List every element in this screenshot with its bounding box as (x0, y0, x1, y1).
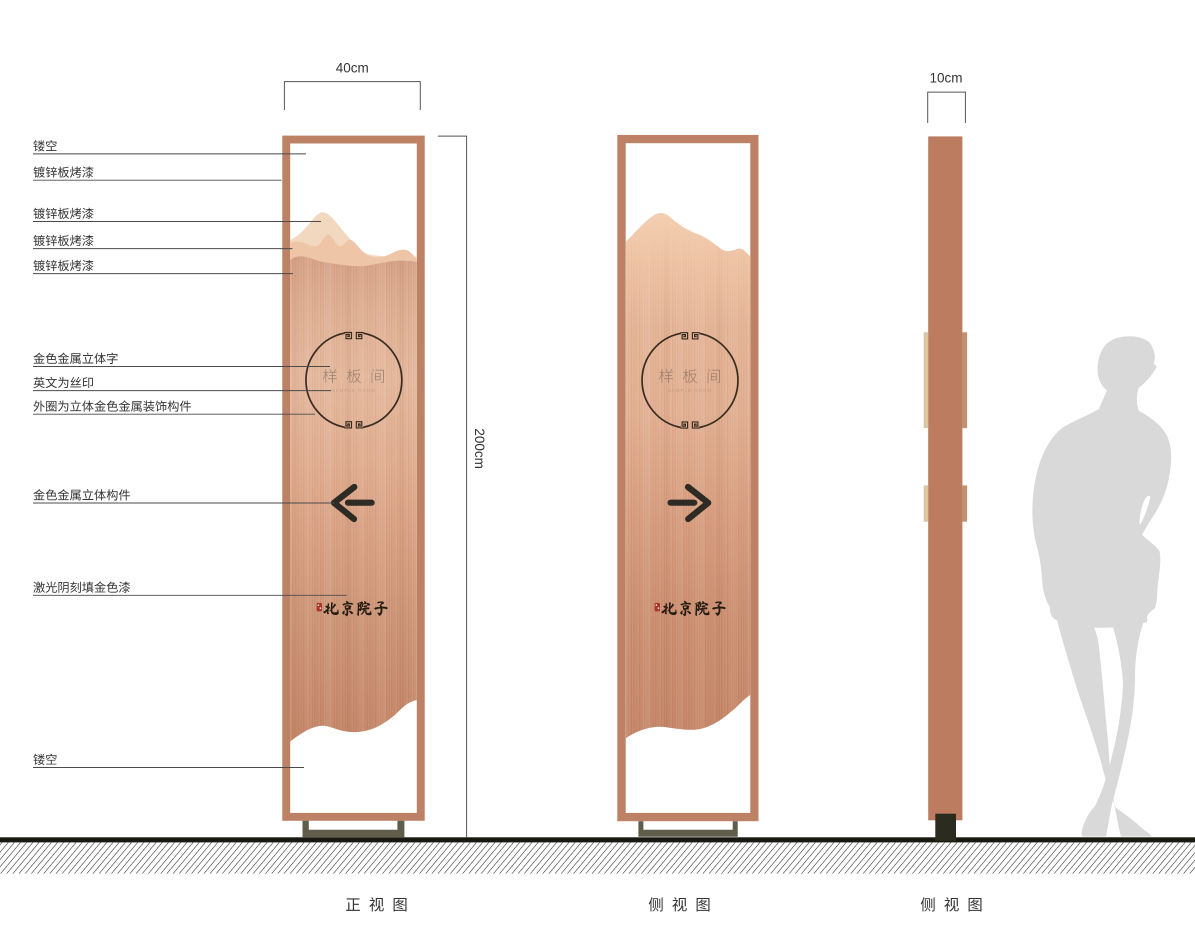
svg-text:40cm: 40cm (336, 61, 369, 76)
svg-text:SAMPLE ROOM: SAMPLE ROOM (332, 388, 376, 393)
svg-text:SAMPLE ROOM: SAMPLE ROOM (668, 388, 712, 393)
svg-text:200cm: 200cm (472, 428, 487, 469)
svg-text:10cm: 10cm (929, 71, 962, 86)
